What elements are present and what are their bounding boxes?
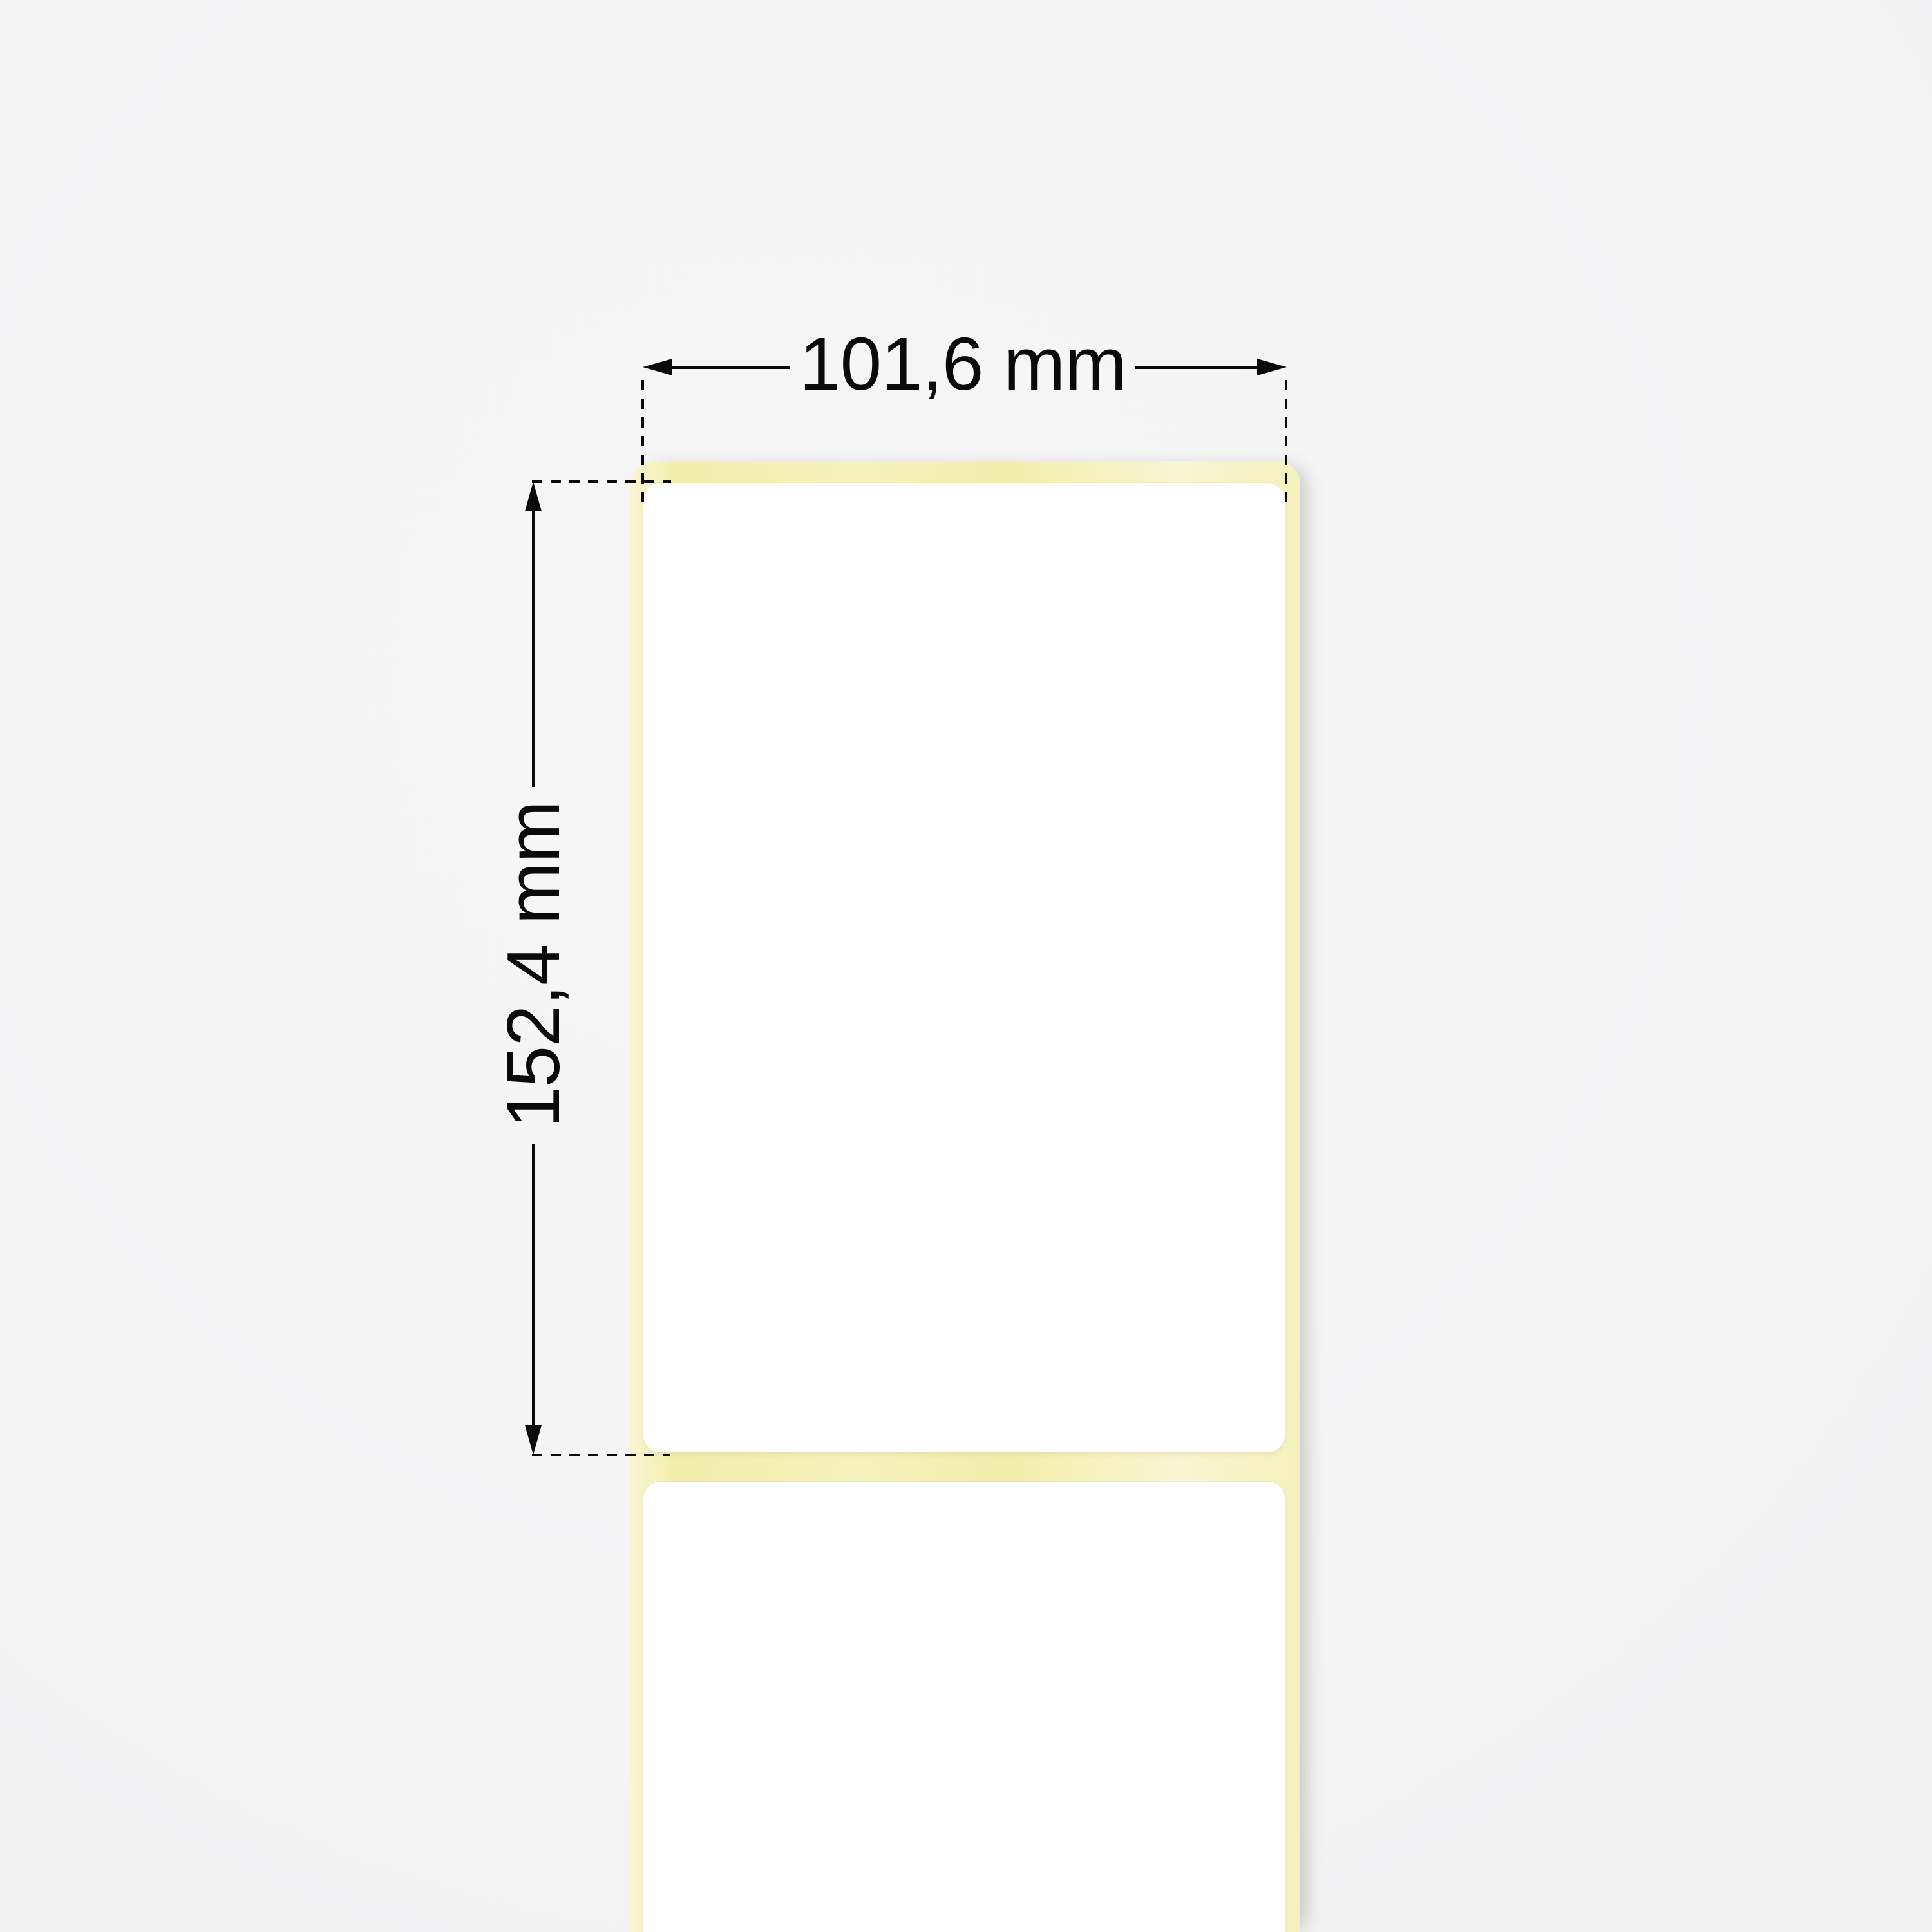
width-arrow-shaft-left bbox=[663, 366, 790, 369]
width-dimension-label: 101,6 mm bbox=[792, 326, 1133, 402]
width-extension-line-right bbox=[1285, 380, 1287, 507]
width-extension-line-left bbox=[641, 380, 644, 507]
height-arrowhead-up-icon bbox=[525, 482, 542, 511]
thermal-label-top bbox=[643, 483, 1285, 1452]
height-dimension-label: 152,4 mm bbox=[495, 800, 571, 1129]
liner-strip bbox=[630, 461, 1300, 1932]
height-arrow-shaft-top bbox=[532, 509, 535, 787]
width-arrow-shaft-right bbox=[1135, 366, 1267, 369]
height-extension-line-top bbox=[532, 480, 671, 483]
height-extension-line-bottom bbox=[532, 1454, 670, 1456]
width-arrowhead-left-icon bbox=[643, 359, 672, 375]
label-roll-dimension-diagram: 101,6 mm 152,4 mm bbox=[0, 0, 1932, 1932]
height-arrowhead-down-icon bbox=[525, 1425, 542, 1455]
height-arrow-shaft-bottom bbox=[532, 1144, 535, 1427]
width-arrowhead-right-icon bbox=[1257, 359, 1287, 375]
thermal-label-bottom bbox=[643, 1482, 1285, 1932]
